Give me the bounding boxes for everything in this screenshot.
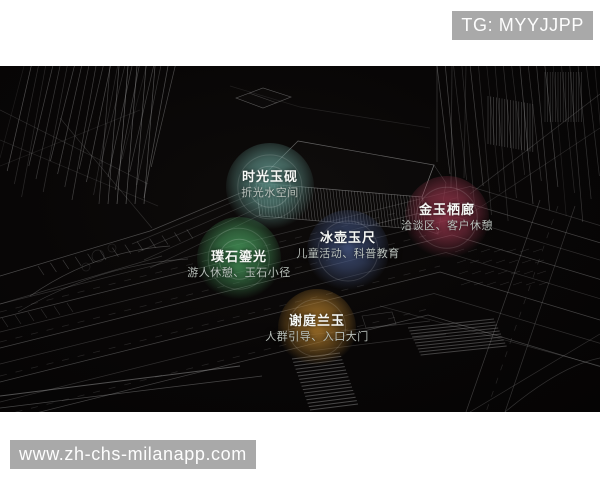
zone-label: 谢庭兰玉 人群引导、入口大门	[207, 312, 427, 345]
zone-subtitle: 折光水空间	[160, 186, 380, 201]
watermark-bottom-url: www.zh-chs-milanapp.com	[10, 440, 256, 469]
zone-label: 璞石鎏光 游人休憩、玉石小径	[129, 248, 349, 281]
watermark-top: TG: MYYJJPP	[452, 11, 593, 40]
page: { "watermark_top": { "label": "TG: MYYJJ…	[0, 0, 600, 480]
site-rendering: 时光玉砚 折光水空间 金玉栖廊 洽谈区、客户休憩 冰壶玉尺 儿童活动、科普教育 …	[0, 66, 600, 412]
zone-subtitle: 游人休憩、玉石小径	[129, 266, 349, 281]
zone-label: 时光玉砚 折光水空间	[160, 168, 380, 201]
zone-title: 璞石鎏光	[129, 248, 349, 265]
zone-title: 谢庭兰玉	[207, 312, 427, 329]
zone-title: 时光玉砚	[160, 168, 380, 185]
zone-subtitle: 人群引导、入口大门	[207, 330, 427, 345]
